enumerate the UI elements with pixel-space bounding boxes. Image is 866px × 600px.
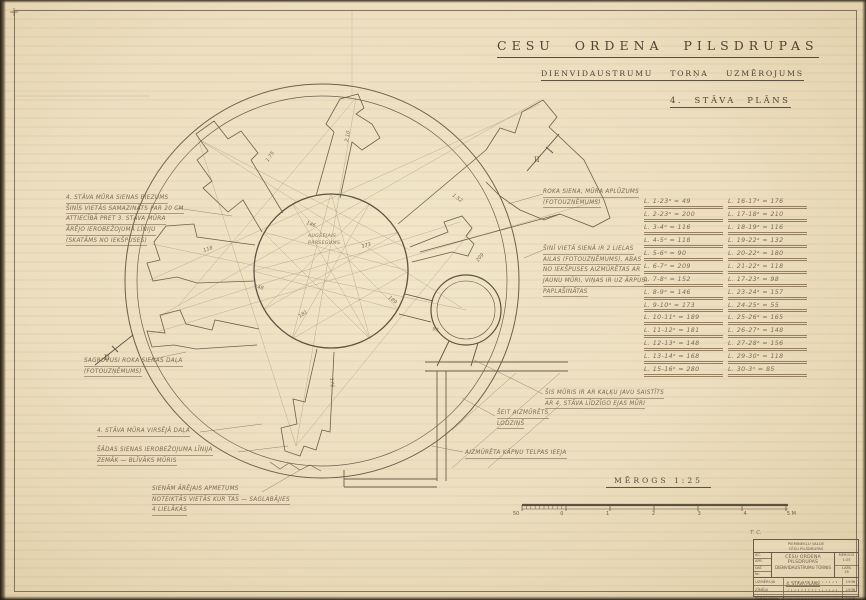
signature-year: 1936	[842, 595, 858, 600]
drawing-sheet: II II 1.75 2.10 1.52 146 173 189 181 148…	[0, 0, 866, 600]
signature-handwriting	[784, 595, 842, 600]
signature-label: PĀRBAUDĪJA	[754, 595, 784, 600]
sheet-border	[14, 10, 857, 592]
signature-row: PĀRBAUDĪJA 1936	[754, 595, 858, 600]
